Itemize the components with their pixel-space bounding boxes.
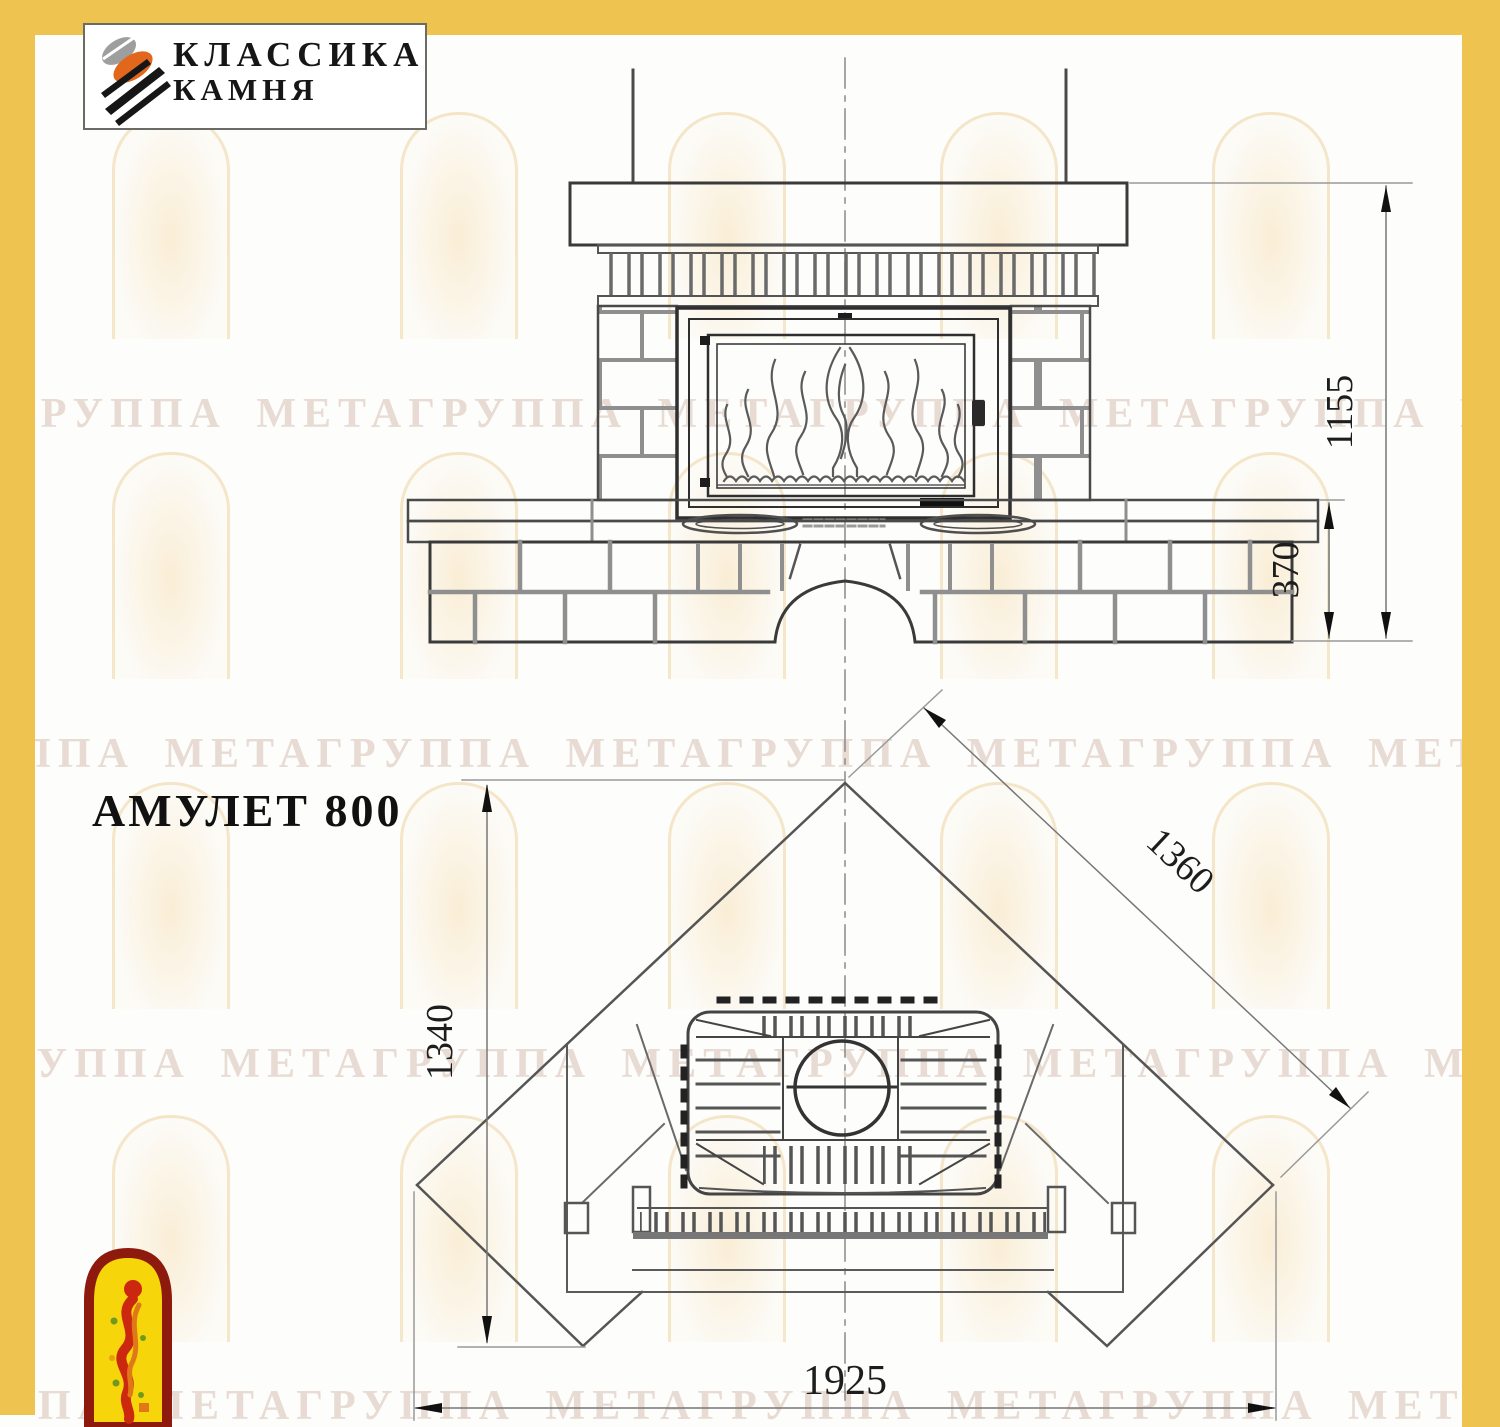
firebox-corner-tab xyxy=(700,478,710,487)
dimension-1360-label: 1360 xyxy=(1138,820,1222,903)
dimension-370-label: 370 xyxy=(1265,542,1307,599)
front-elevation-view: 1155 370 xyxy=(408,58,1412,1400)
product-title: АМУЛЕТ 800 xyxy=(92,785,402,836)
base-with-niche xyxy=(430,542,1292,642)
firebox-handle xyxy=(972,400,985,426)
brick-column-left xyxy=(598,306,677,500)
insert-top-view xyxy=(684,1000,998,1194)
coals xyxy=(724,477,964,482)
dimension-1340: 1340 xyxy=(419,780,845,1347)
technical-drawing: 1155 370 xyxy=(0,0,1500,1427)
stone-logo-icon xyxy=(95,29,173,127)
brick-column-right xyxy=(1011,306,1090,500)
page-border-left xyxy=(0,35,35,1415)
dimension-1155-label: 1155 xyxy=(1319,375,1361,450)
header-logo-line1: КЛАССИКА xyxy=(173,37,424,74)
floor-plate-right xyxy=(1048,1185,1273,1346)
header-logo: КЛАССИКА КАМНЯ xyxy=(83,23,427,130)
page-border-right xyxy=(1462,35,1500,1427)
firebox-top-tick xyxy=(838,313,852,318)
dimension-1340-label: 1340 xyxy=(419,1004,461,1080)
firebird-emblem xyxy=(83,1243,173,1427)
firebox-corner-tab xyxy=(700,336,710,345)
page: ГРУППА МЕТАГРУППА МЕТАГРУППА МЕТАГРУППА … xyxy=(0,0,1500,1427)
dimension-1360: 1360 xyxy=(849,690,1368,1177)
plan-view: 1340 1360 1925 xyxy=(414,690,1368,1420)
baluster-band xyxy=(598,245,1098,306)
mantel-shelf xyxy=(570,183,1127,245)
header-logo-line2: КАМНЯ xyxy=(173,74,424,107)
front-dentil-band xyxy=(633,1208,1048,1239)
dimension-1925-label: 1925 xyxy=(803,1358,887,1404)
flames xyxy=(718,348,964,485)
floor-plate-left xyxy=(417,1185,642,1346)
